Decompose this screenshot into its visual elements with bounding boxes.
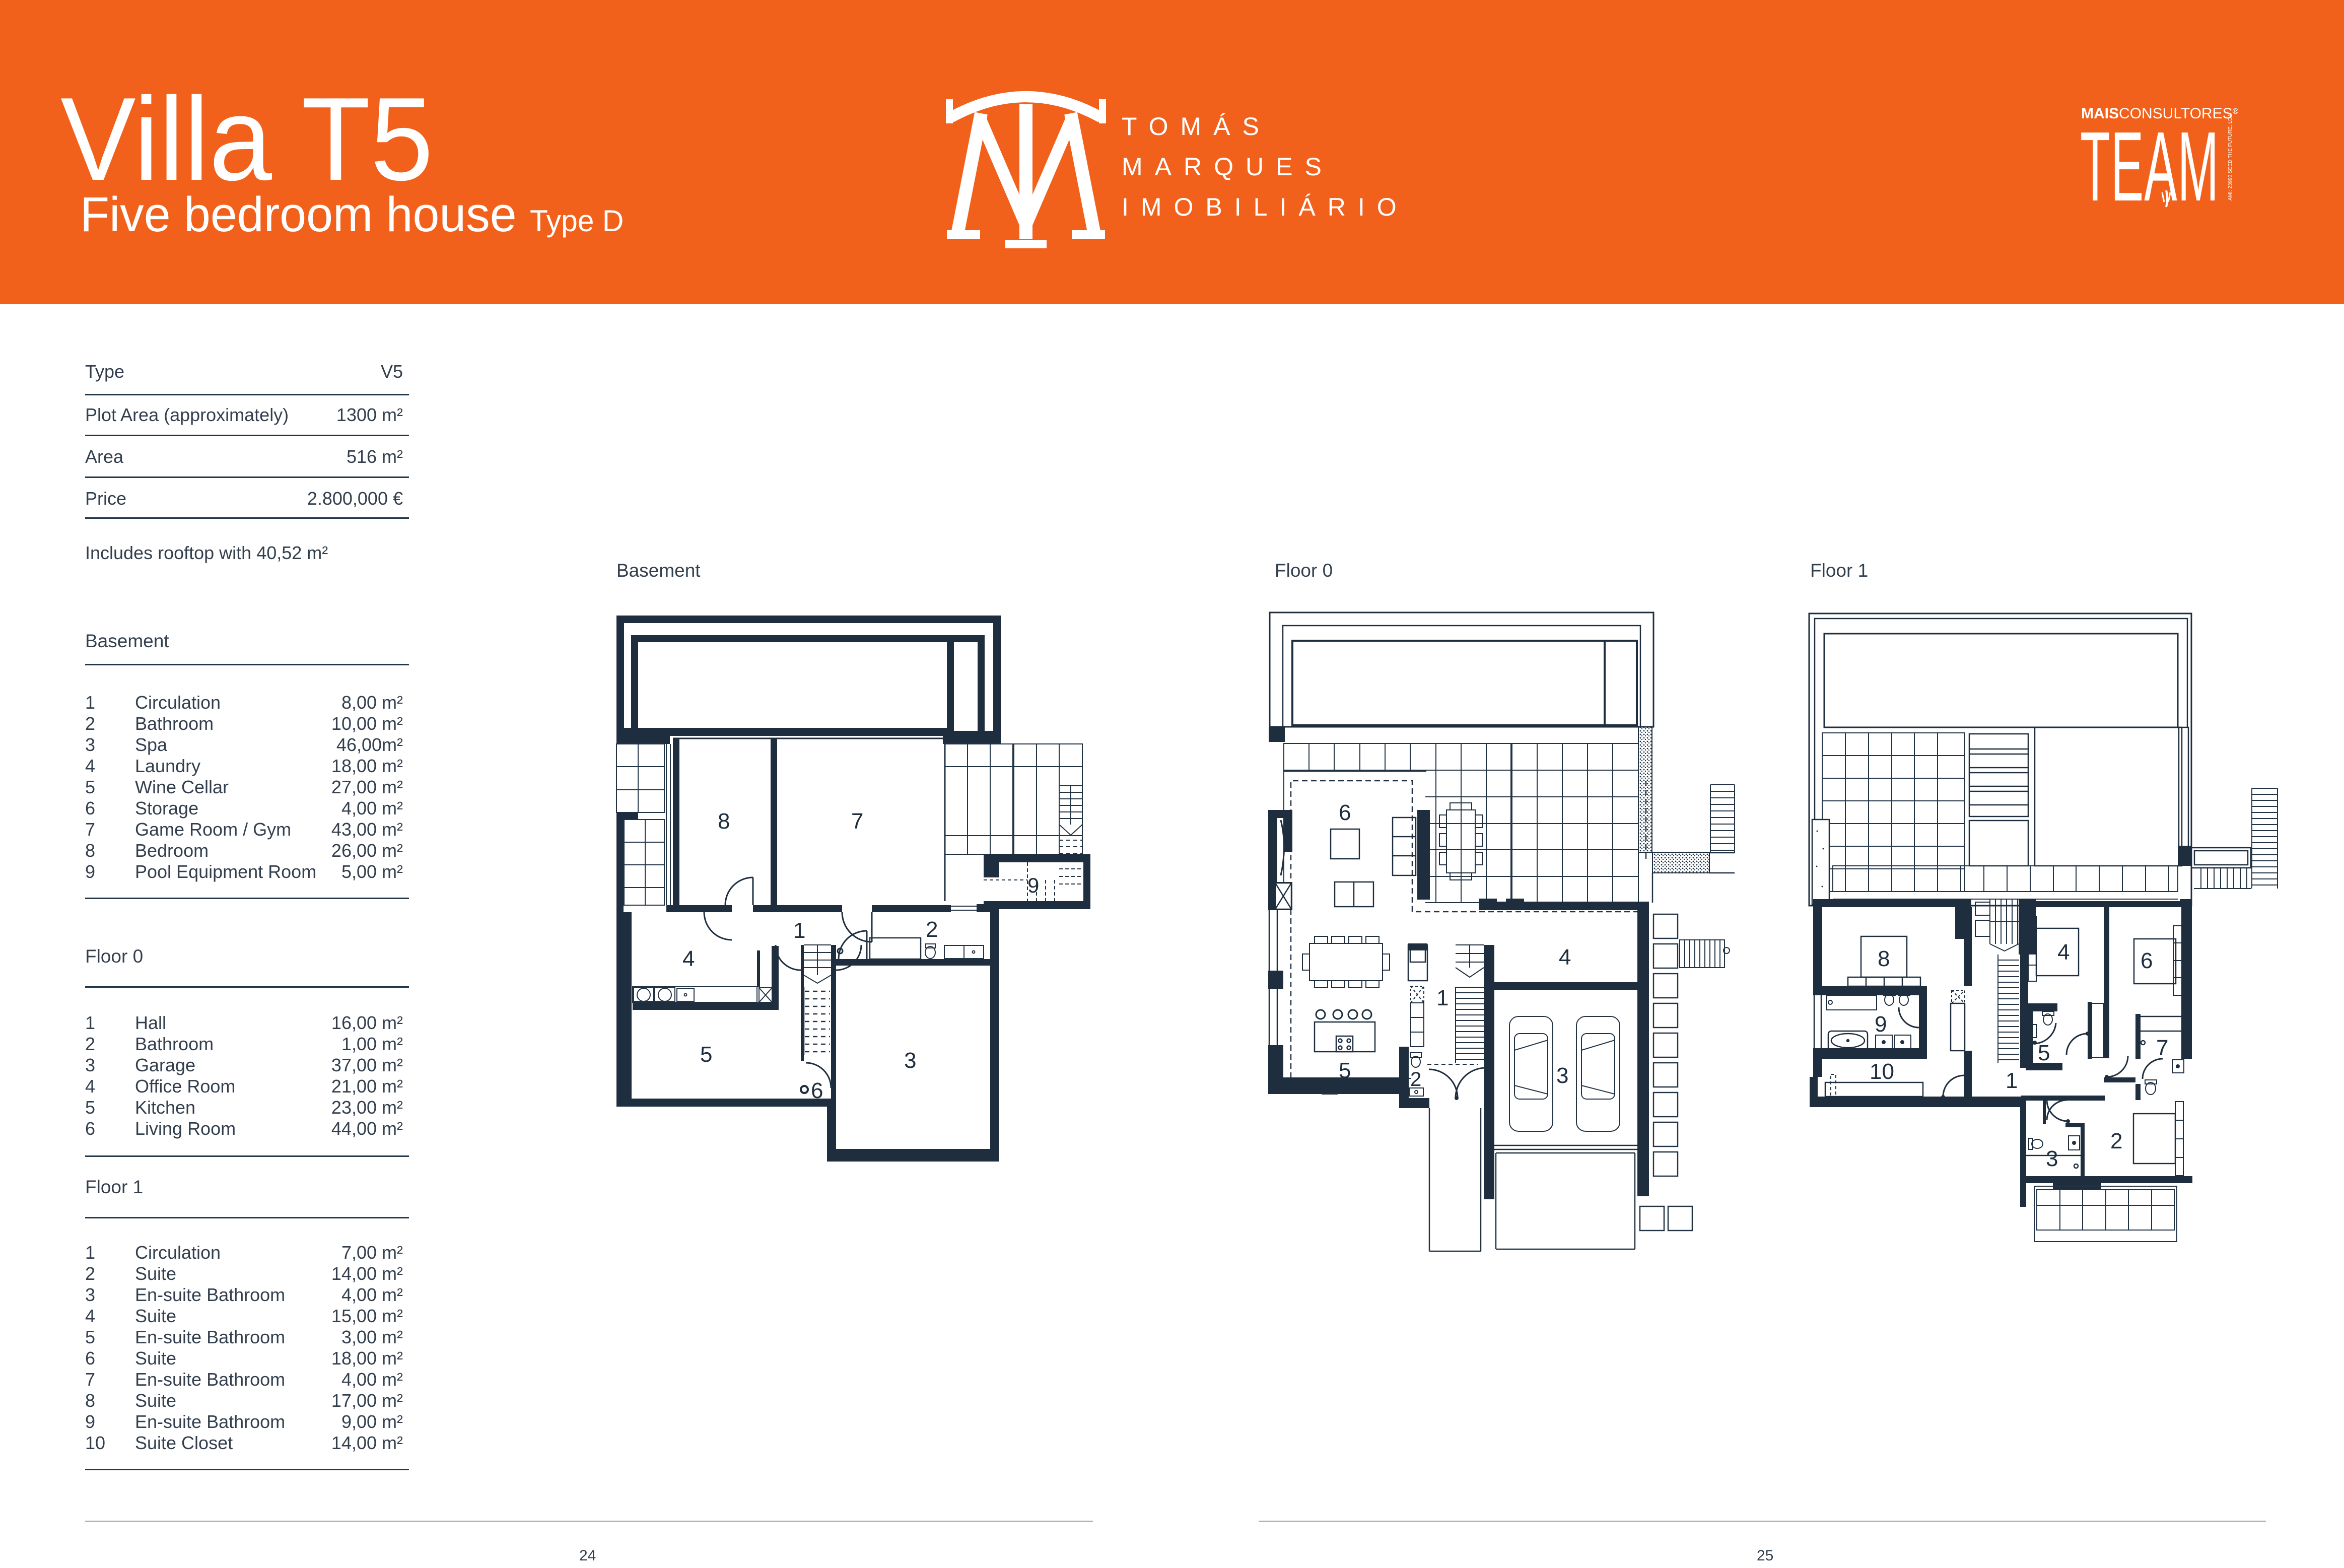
svg-text:6: 6 bbox=[2141, 948, 2153, 973]
svg-text:5: 5 bbox=[700, 1042, 712, 1067]
svg-text:10: 10 bbox=[1870, 1059, 1894, 1084]
svg-text:6: 6 bbox=[811, 1078, 823, 1103]
svg-text:1: 1 bbox=[2006, 1068, 2018, 1093]
svg-text:7: 7 bbox=[2156, 1036, 2168, 1060]
svg-text:2: 2 bbox=[926, 917, 938, 942]
svg-text:3: 3 bbox=[1556, 1063, 1568, 1088]
svg-text:4: 4 bbox=[682, 946, 695, 971]
svg-text:1: 1 bbox=[793, 918, 805, 943]
svg-text:7: 7 bbox=[851, 809, 863, 834]
svg-text:AMI: 23990 SEED THE FUTURE, L: AMI: 23990 SEED THE FUTURE, LDA. bbox=[2228, 112, 2233, 200]
svg-text:9: 9 bbox=[1027, 873, 1039, 897]
svg-text:2: 2 bbox=[1410, 1068, 1421, 1090]
svg-text:8: 8 bbox=[718, 809, 730, 834]
svg-text:3: 3 bbox=[2046, 1146, 2058, 1171]
svg-text:TEAM: TEAM bbox=[2080, 111, 2219, 219]
svg-text:6: 6 bbox=[1339, 800, 1351, 825]
svg-text:2: 2 bbox=[2110, 1129, 2122, 1153]
svg-text:4: 4 bbox=[2057, 940, 2070, 965]
svg-text:1: 1 bbox=[1436, 986, 1449, 1010]
svg-text:4: 4 bbox=[1559, 945, 1571, 970]
svg-text:9: 9 bbox=[1875, 1012, 1887, 1037]
svg-text:8: 8 bbox=[1878, 946, 1890, 971]
svg-text:3: 3 bbox=[904, 1048, 916, 1073]
svg-text:5: 5 bbox=[2038, 1041, 2050, 1065]
